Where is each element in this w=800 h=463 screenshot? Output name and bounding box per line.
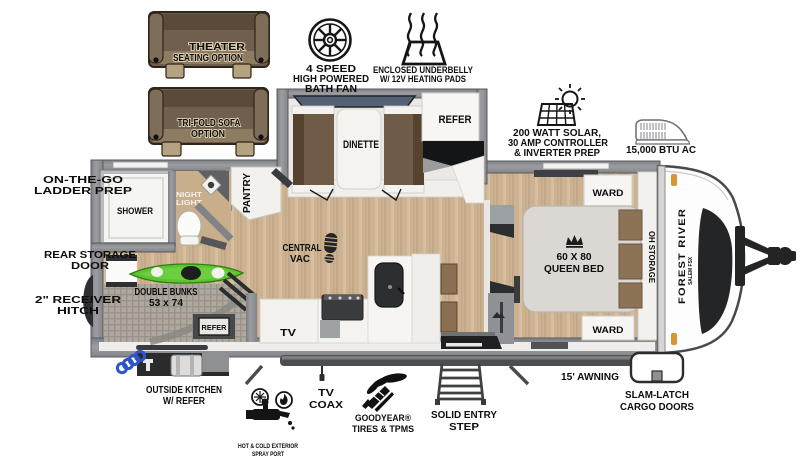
svg-text:SHOWER: SHOWER <box>117 206 153 217</box>
svg-text:QUEEN BED: QUEEN BED <box>544 263 604 275</box>
svg-text:15,000 BTU AC: 15,000 BTU AC <box>626 144 696 156</box>
svg-text:53 x 74: 53 x 74 <box>149 298 183 309</box>
svg-text:HOT & COLD EXTERIOR: HOT & COLD EXTERIOR <box>238 443 298 450</box>
svg-text:FOREST RIVER: FOREST RIVER <box>677 208 688 304</box>
svg-text:TV: TV <box>280 327 296 339</box>
svg-text:COAX: COAX <box>309 399 343 411</box>
svg-text:LADDER PREP: LADDER PREP <box>34 185 132 197</box>
svg-text:STEP: STEP <box>449 421 479 433</box>
svg-text:TV: TV <box>318 387 334 399</box>
svg-text:WARD: WARD <box>593 188 624 199</box>
svg-text:HITCH: HITCH <box>57 305 99 317</box>
svg-text:OPTION: OPTION <box>191 128 225 140</box>
svg-text:OH STORAGE: OH STORAGE <box>647 231 657 283</box>
svg-text:BATH FAN: BATH FAN <box>305 83 357 95</box>
svg-text:SALEM FSX: SALEM FSX <box>688 256 694 285</box>
svg-text:DOOR: DOOR <box>71 260 110 272</box>
svg-text:PANTRY: PANTRY <box>241 173 253 213</box>
svg-text:DOUBLE BUNKS: DOUBLE BUNKS <box>135 287 198 298</box>
svg-text:WARD: WARD <box>593 325 624 336</box>
svg-text:60 X 80: 60 X 80 <box>557 251 592 263</box>
svg-text:SLAM-LATCH: SLAM-LATCH <box>625 389 689 401</box>
svg-text:W/ REFER: W/ REFER <box>163 396 206 407</box>
svg-text:SEATING OPTION: SEATING OPTION <box>173 52 243 64</box>
svg-text:15' AWNING: 15' AWNING <box>561 371 619 383</box>
svg-text:REFER: REFER <box>202 325 227 332</box>
svg-text:VAC: VAC <box>290 253 310 265</box>
svg-text:CARGO DOORS: CARGO DOORS <box>620 401 694 413</box>
svg-text:SOLID ENTRY: SOLID ENTRY <box>431 409 497 421</box>
svg-text:W/ 12V HEATING PADS: W/ 12V HEATING PADS <box>380 74 466 85</box>
svg-text:DINETTE: DINETTE <box>343 139 379 151</box>
svg-text:& INVERTER PREP: & INVERTER PREP <box>514 147 600 159</box>
svg-text:SPRAY PORT: SPRAY PORT <box>252 451 284 458</box>
svg-text:REFER: REFER <box>439 114 472 126</box>
svg-text:OUTSIDE KITCHEN: OUTSIDE KITCHEN <box>146 385 222 396</box>
svg-text:TIRES & TPMS: TIRES & TPMS <box>352 424 414 435</box>
svg-text:GOODYEAR®: GOODYEAR® <box>355 413 411 424</box>
